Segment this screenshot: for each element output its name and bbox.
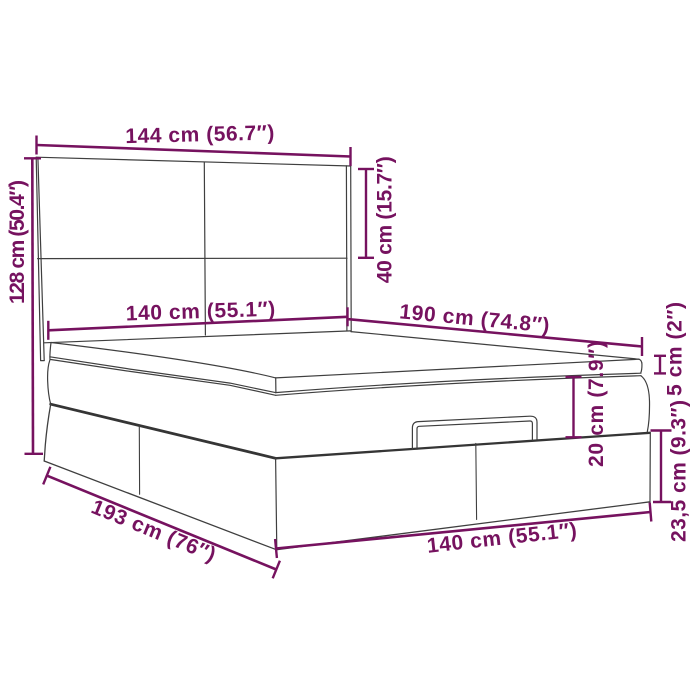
svg-text:40 cm (15.7″): 40 cm (15.7″) (374, 156, 397, 283)
svg-text:128 cm (50.4″): 128 cm (50.4″) (6, 180, 29, 304)
svg-text:144 cm (56.7″): 144 cm (56.7″) (125, 121, 275, 148)
svg-text:140 cm (55.1″): 140 cm (55.1″) (125, 298, 275, 326)
svg-text:20 cm (7.9″): 20 cm (7.9″) (585, 341, 608, 467)
svg-text:23,5 cm (9.3″): 23,5 cm (9.3″) (668, 400, 691, 542)
svg-text:5 cm (2″): 5 cm (2″) (664, 302, 687, 396)
